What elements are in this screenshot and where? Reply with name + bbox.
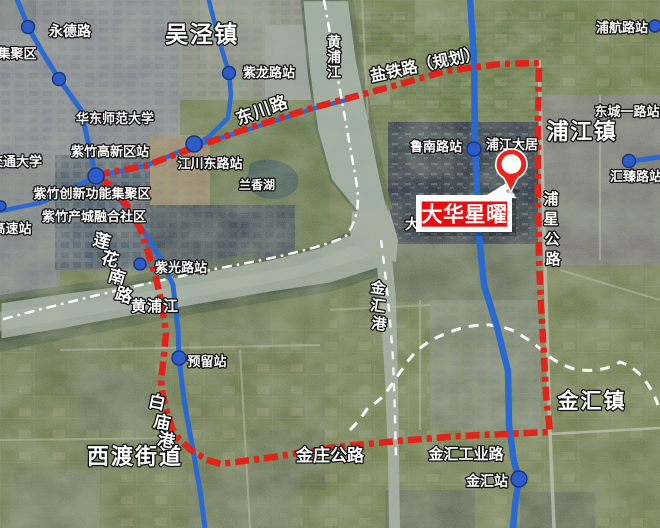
svg-text:浦江镇: 浦江镇 (547, 119, 618, 144)
svg-text:金汇工业路: 金汇工业路 (427, 445, 504, 463)
svg-text:紫竹创新功能集聚区: 紫竹创新功能集聚区 (33, 186, 150, 201)
svg-text:华东师范大学: 华东师范大学 (76, 111, 154, 126)
svg-text:公: 公 (544, 231, 559, 248)
svg-text:紫竹产城融合社区: 紫竹产城融合社区 (42, 209, 146, 224)
svg-text:汇: 汇 (369, 297, 386, 316)
svg-text:大华星曜: 大华星曜 (422, 203, 508, 227)
svg-text:金汇镇: 金汇镇 (557, 389, 627, 413)
svg-text:江川东路站: 江川东路站 (177, 156, 242, 171)
svg-text:浦: 浦 (543, 190, 558, 208)
svg-text:紫光路站: 紫光路站 (155, 260, 207, 275)
svg-text:金汇站: 金汇站 (465, 473, 508, 489)
svg-text:黄: 黄 (327, 34, 341, 50)
svg-text:星: 星 (543, 211, 558, 228)
svg-text:高速站: 高速站 (0, 221, 32, 236)
svg-text:紫竹高新区站: 紫竹高新区站 (71, 144, 149, 159)
svg-text:金庄公路: 金庄公路 (295, 445, 365, 465)
svg-text:汇臻路站: 汇臻路站 (610, 169, 660, 184)
svg-text:兰香湖: 兰香湖 (239, 177, 275, 192)
svg-text:交通大学: 交通大学 (0, 154, 42, 169)
svg-text:江: 江 (327, 64, 341, 80)
svg-text:浦航路站: 浦航路站 (596, 20, 648, 35)
svg-text:预留站: 预留站 (187, 354, 226, 369)
svg-text:紫龙路站: 紫龙路站 (243, 65, 295, 80)
svg-text:永德路: 永德路 (48, 23, 92, 39)
svg-text:路: 路 (545, 250, 561, 268)
svg-text:浦: 浦 (327, 49, 341, 65)
svg-text:集聚区: 集聚区 (0, 46, 37, 61)
svg-text:吴泾镇: 吴泾镇 (165, 21, 239, 47)
svg-text:东城一路站: 东城一路站 (594, 104, 659, 119)
svg-text:黄浦江: 黄浦江 (131, 297, 179, 315)
svg-text:鲁南路站: 鲁南路站 (410, 139, 462, 154)
